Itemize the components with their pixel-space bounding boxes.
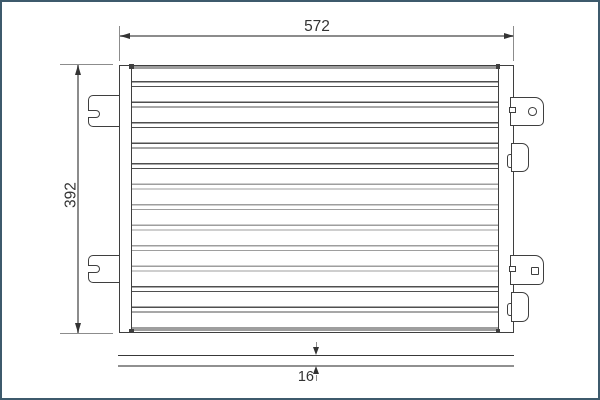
width-dimension-line [119, 35, 514, 36]
bracket-hole-square-lower-right [531, 267, 539, 275]
thickness-dimension-label: 16 [282, 370, 314, 385]
height-arrow-bottom-icon [75, 323, 81, 333]
thickness-arrow-up-icon [313, 366, 319, 374]
mounting-tab-upper-right [511, 143, 529, 172]
thickness-leader-lower [316, 375, 317, 382]
corner-block-bottom-right [496, 329, 501, 334]
bracket-notch-lower-right [509, 266, 516, 272]
core-tubes-light-section [132, 180, 498, 277]
thickness-arrow-down-icon [313, 347, 319, 355]
width-extension-line-left [119, 26, 120, 61]
corner-block-top-left [129, 64, 134, 69]
core-bottom-band [132, 327, 498, 330]
core-top-band [132, 66, 498, 69]
width-dimension-label: 572 [281, 18, 353, 35]
bracket-hole-round-top-right [528, 107, 537, 116]
bracket-slot-top-left [88, 110, 101, 119]
width-arrow-left-icon [120, 33, 130, 39]
bracket-notch-top-right [509, 107, 516, 113]
height-arrow-top-icon [75, 65, 81, 75]
width-extension-line-right [513, 26, 514, 61]
bracket-slot-bottom-left [88, 265, 101, 274]
width-arrow-right-icon [504, 33, 514, 39]
height-extension-line-bottom [60, 333, 113, 334]
corner-block-top-right [496, 64, 501, 69]
left-header-tank [119, 65, 132, 334]
corner-block-bottom-left [129, 329, 134, 334]
height-extension-line-top [60, 64, 113, 65]
height-dimension-label: 392 [60, 172, 82, 218]
mounting-tab-bottom-right [511, 292, 529, 322]
condenser-technical-drawing: 572 392 16 [0, 0, 600, 400]
